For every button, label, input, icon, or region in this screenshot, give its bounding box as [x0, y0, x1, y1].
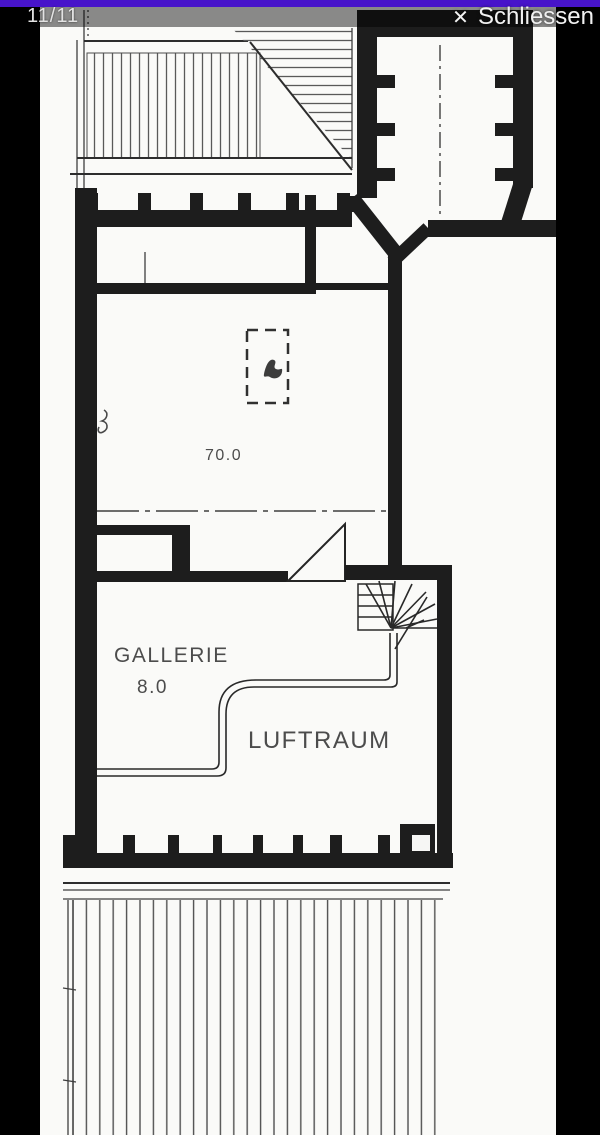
image-counter: 11/11: [27, 5, 79, 28]
gallery-area-value: 8.0: [137, 677, 168, 698]
image-viewer: 70.0 GALLERIE 8.0 LUFTRAUM 11/11 ✕ Schli…: [0, 0, 600, 1135]
close-label: Schliessen: [478, 3, 594, 31]
tower: [337, 10, 556, 262]
close-icon: ✕: [452, 8, 469, 28]
chimney: [247, 330, 288, 403]
section-mark: [98, 410, 107, 433]
terrace-hatch: [63, 883, 450, 1135]
gallery-label: GALLERIE: [114, 644, 229, 667]
bottom-wall: [63, 824, 453, 868]
void-label: LUFTRAUM: [248, 727, 391, 754]
main-area-value: 70.0: [205, 447, 242, 464]
floorplan-image[interactable]: 70.0 GALLERIE 8.0 LUFTRAUM: [40, 7, 556, 1135]
close-button[interactable]: ✕ Schliessen: [452, 3, 594, 31]
roof-hatch: [70, 10, 352, 192]
